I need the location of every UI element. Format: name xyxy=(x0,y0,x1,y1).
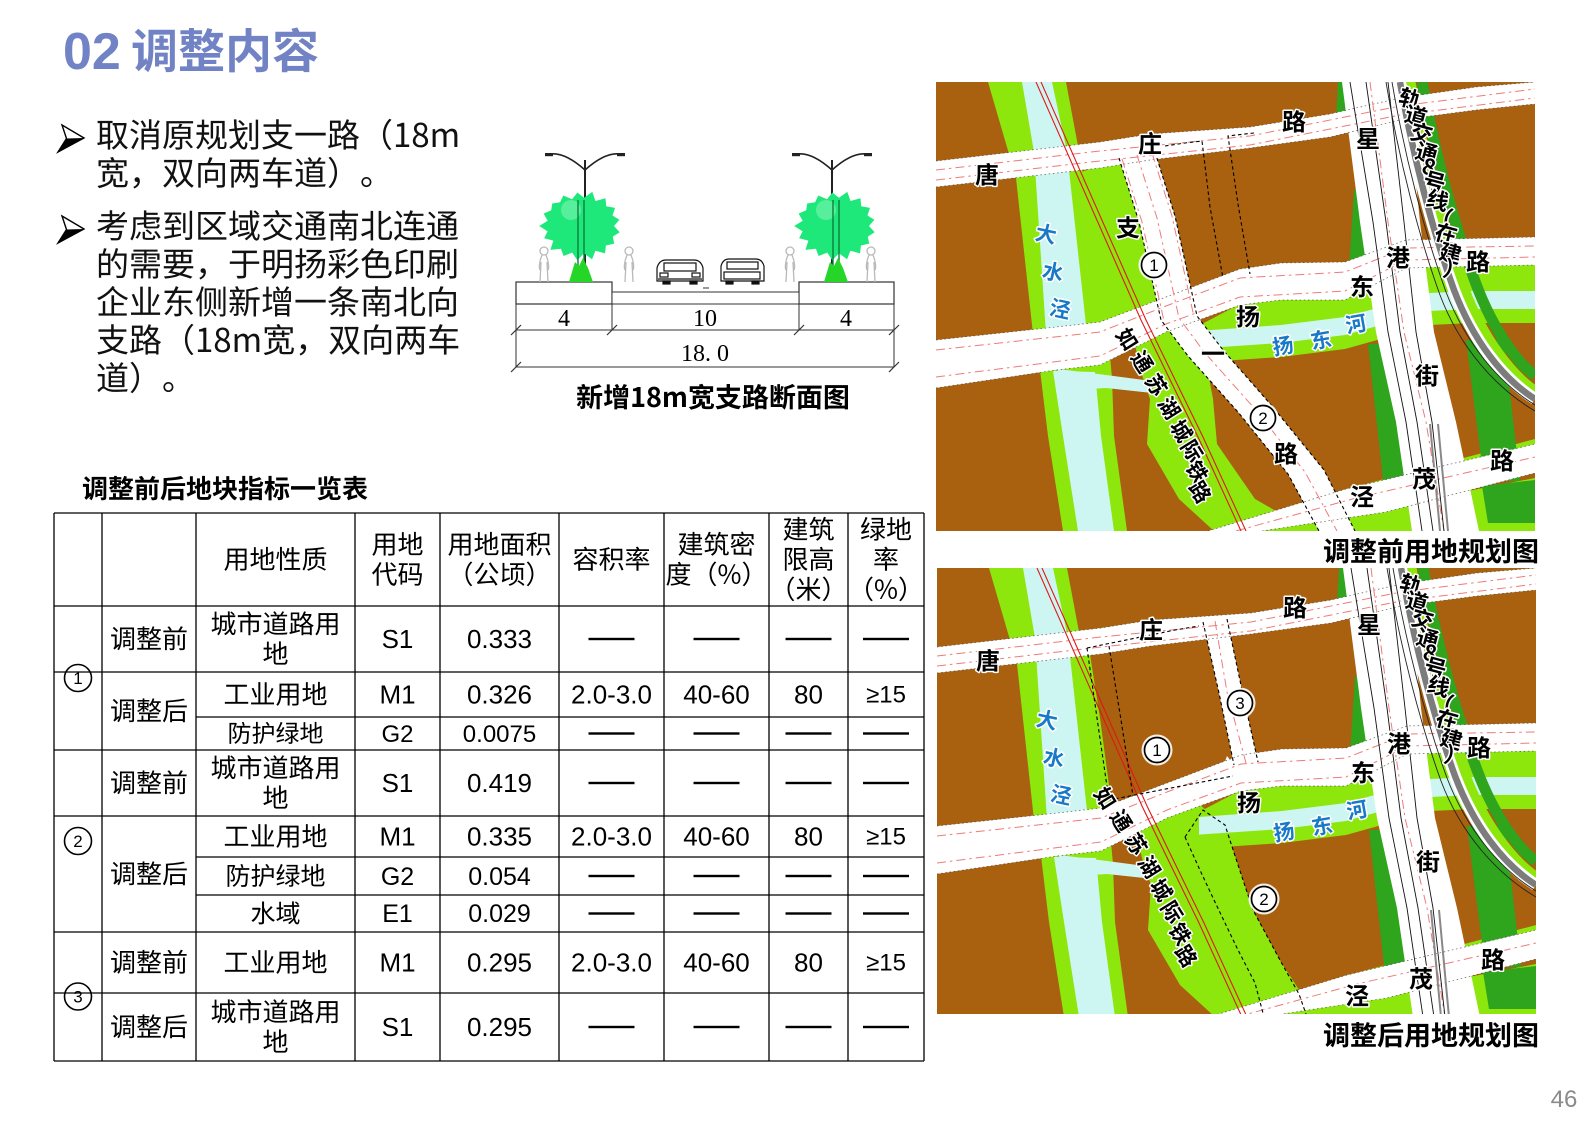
svg-text:80: 80 xyxy=(794,948,823,978)
svg-text:M1: M1 xyxy=(379,822,415,852)
svg-text:3: 3 xyxy=(73,988,82,1007)
svg-text:0.419: 0.419 xyxy=(467,768,532,798)
svg-text:2: 2 xyxy=(1258,409,1267,428)
svg-text:1: 1 xyxy=(1149,256,1158,275)
svg-text:E1: E1 xyxy=(382,900,413,928)
svg-text:2.0-3.0: 2.0-3.0 xyxy=(571,948,652,978)
svg-text:10: 10 xyxy=(693,306,717,332)
svg-text:80: 80 xyxy=(794,822,823,852)
svg-text:0.295: 0.295 xyxy=(467,1012,532,1042)
svg-text:2: 2 xyxy=(73,832,82,851)
svg-text:3: 3 xyxy=(1235,694,1244,713)
svg-text:G2: G2 xyxy=(381,721,413,748)
svg-text:4: 4 xyxy=(558,306,570,332)
svg-text:≥15: ≥15 xyxy=(866,824,906,851)
svg-text:0.029: 0.029 xyxy=(468,900,531,928)
svg-text:40-60: 40-60 xyxy=(683,948,750,978)
svg-text:0.295: 0.295 xyxy=(467,948,532,978)
svg-text:40-60: 40-60 xyxy=(683,822,750,852)
svg-text:2.0-3.0: 2.0-3.0 xyxy=(571,822,652,852)
svg-text:M1: M1 xyxy=(379,680,415,710)
svg-text:S1: S1 xyxy=(382,768,414,798)
svg-text:0.054: 0.054 xyxy=(468,863,531,891)
svg-text:40-60: 40-60 xyxy=(683,680,750,710)
svg-text:1: 1 xyxy=(73,669,82,688)
svg-text:S1: S1 xyxy=(382,1012,414,1042)
svg-text:18. 0: 18. 0 xyxy=(681,341,729,367)
svg-text:S1: S1 xyxy=(382,624,414,654)
svg-text:≥15: ≥15 xyxy=(866,950,906,977)
svg-text:1: 1 xyxy=(1152,741,1161,760)
svg-text:0.326: 0.326 xyxy=(467,680,532,710)
svg-text:G2: G2 xyxy=(381,863,414,891)
svg-text:4: 4 xyxy=(840,306,852,332)
svg-text:0.335: 0.335 xyxy=(467,822,532,852)
svg-text:0.0075: 0.0075 xyxy=(463,721,536,748)
svg-text:80: 80 xyxy=(794,680,823,710)
svg-text:M1: M1 xyxy=(379,948,415,978)
svg-text:2.0-3.0: 2.0-3.0 xyxy=(571,680,652,710)
svg-text:46: 46 xyxy=(1551,1086,1578,1113)
svg-text:0.333: 0.333 xyxy=(467,624,532,654)
svg-text:2: 2 xyxy=(1259,890,1268,909)
svg-text:≥15: ≥15 xyxy=(866,682,906,709)
svg-text:02: 02 xyxy=(63,23,121,81)
